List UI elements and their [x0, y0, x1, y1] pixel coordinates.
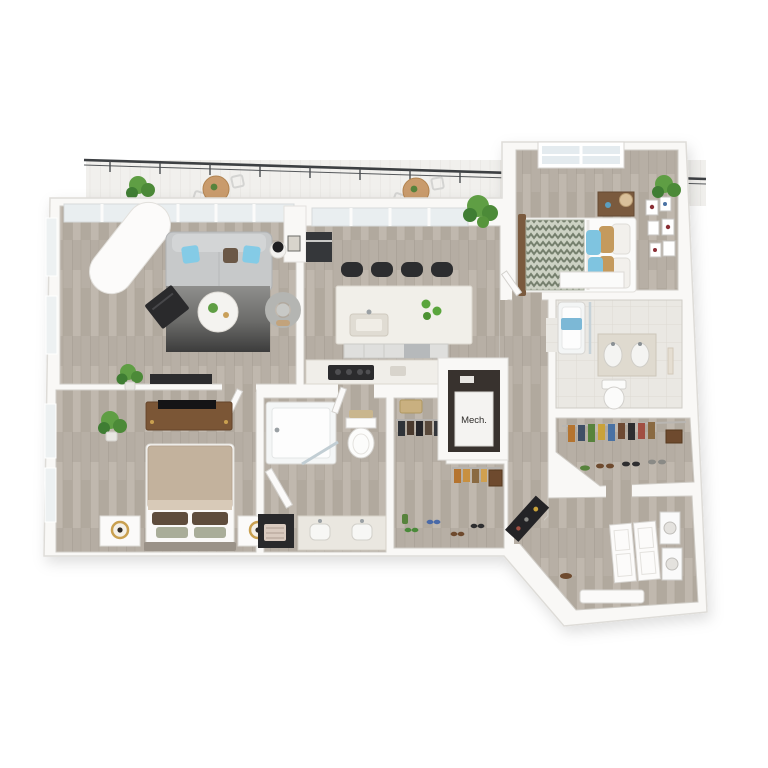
sink	[352, 524, 372, 540]
floorplan-render: Mech.	[0, 0, 768, 768]
media-console	[150, 374, 212, 384]
kitchen-hall-opening	[500, 300, 510, 364]
coffee-table	[198, 292, 238, 332]
throw-blanket	[276, 320, 290, 326]
pillow-sage	[194, 527, 226, 538]
bar-stool	[341, 262, 363, 277]
art-blue	[663, 202, 667, 206]
side-table	[270, 242, 286, 259]
wall-art	[288, 236, 300, 251]
bathroom-2-door-opening	[546, 318, 558, 352]
sofa	[166, 232, 272, 292]
table-lamp	[620, 194, 633, 207]
tan-duvet	[148, 446, 232, 508]
art-red	[666, 225, 670, 229]
bathtub	[558, 302, 585, 354]
double-vanity	[298, 516, 386, 550]
green-apple	[422, 300, 431, 309]
throw-pillow-brown	[223, 248, 238, 263]
living-window	[46, 296, 57, 354]
hallway-floor	[508, 300, 548, 530]
green-item	[402, 514, 408, 524]
art-red	[653, 248, 657, 252]
mechanical-closet: Mech.	[438, 358, 508, 460]
throw-pillow-blue	[242, 245, 261, 264]
green-apple	[433, 307, 442, 316]
hanging-clothes-dark	[398, 421, 441, 436]
mech-label: Mech.	[461, 415, 487, 426]
bed	[144, 444, 236, 551]
closet-2-door-opening	[606, 482, 632, 498]
towels	[349, 410, 373, 418]
pillow-tan	[599, 226, 614, 253]
pillow-brown	[152, 512, 188, 525]
dresser-tv	[146, 400, 232, 430]
counter-decor	[390, 366, 406, 376]
speaker	[273, 242, 284, 253]
pillow-brown	[192, 512, 228, 525]
art-red	[650, 205, 654, 209]
dark-cabinet	[258, 514, 294, 548]
sink	[310, 524, 330, 540]
pillow-blue	[586, 230, 601, 255]
built-in-appliance	[306, 232, 332, 262]
blue-towel	[561, 318, 582, 330]
faucet	[367, 310, 372, 315]
table-plant	[211, 184, 218, 191]
pillow-white	[612, 224, 630, 254]
bedroom-1-window	[45, 468, 56, 522]
table-plant	[208, 303, 218, 313]
faucet	[638, 342, 642, 346]
sink	[631, 343, 649, 367]
dishwasher	[404, 344, 430, 358]
hanging-clothes	[568, 422, 655, 442]
clock	[605, 202, 611, 208]
storage-box	[489, 470, 502, 486]
faucet	[318, 519, 322, 523]
bedroom-1-window	[45, 404, 56, 458]
floorplan-stage: Mech.	[0, 0, 768, 768]
headboard	[518, 214, 526, 296]
nightstand	[598, 192, 634, 216]
nightstand-left	[100, 516, 140, 546]
toilet	[346, 410, 376, 458]
low-shelf	[560, 272, 624, 288]
cooktop-counter	[306, 360, 438, 384]
bedroom-2-window	[538, 142, 624, 168]
towel-bar	[668, 348, 673, 374]
headboard	[144, 542, 236, 551]
partial-wall	[284, 206, 306, 262]
faucet	[360, 519, 364, 523]
storage-basket	[400, 400, 422, 413]
tub-faucet	[275, 428, 280, 433]
storage-box	[666, 430, 682, 443]
entry-bench	[580, 590, 644, 603]
island-cabinets	[344, 344, 448, 358]
throw-pillow-blue	[181, 245, 200, 264]
bar-stool	[401, 262, 423, 277]
green-apple	[423, 312, 431, 320]
pillow-sage	[156, 527, 188, 538]
bar-stool	[431, 262, 453, 277]
kitchen-island	[336, 286, 472, 344]
tv	[158, 400, 216, 409]
mech-shelf-item	[460, 376, 474, 383]
duvet-fold	[148, 500, 232, 510]
sink	[604, 343, 622, 367]
living-window	[46, 218, 57, 276]
faucet	[611, 342, 615, 346]
shoes	[560, 573, 572, 579]
double-vanity	[598, 334, 656, 376]
table-decor	[223, 312, 229, 318]
toilet	[602, 380, 626, 409]
bathtub	[266, 402, 338, 464]
bar-stool	[371, 262, 393, 277]
table-plant	[411, 186, 418, 193]
lounge-chair	[270, 297, 296, 326]
